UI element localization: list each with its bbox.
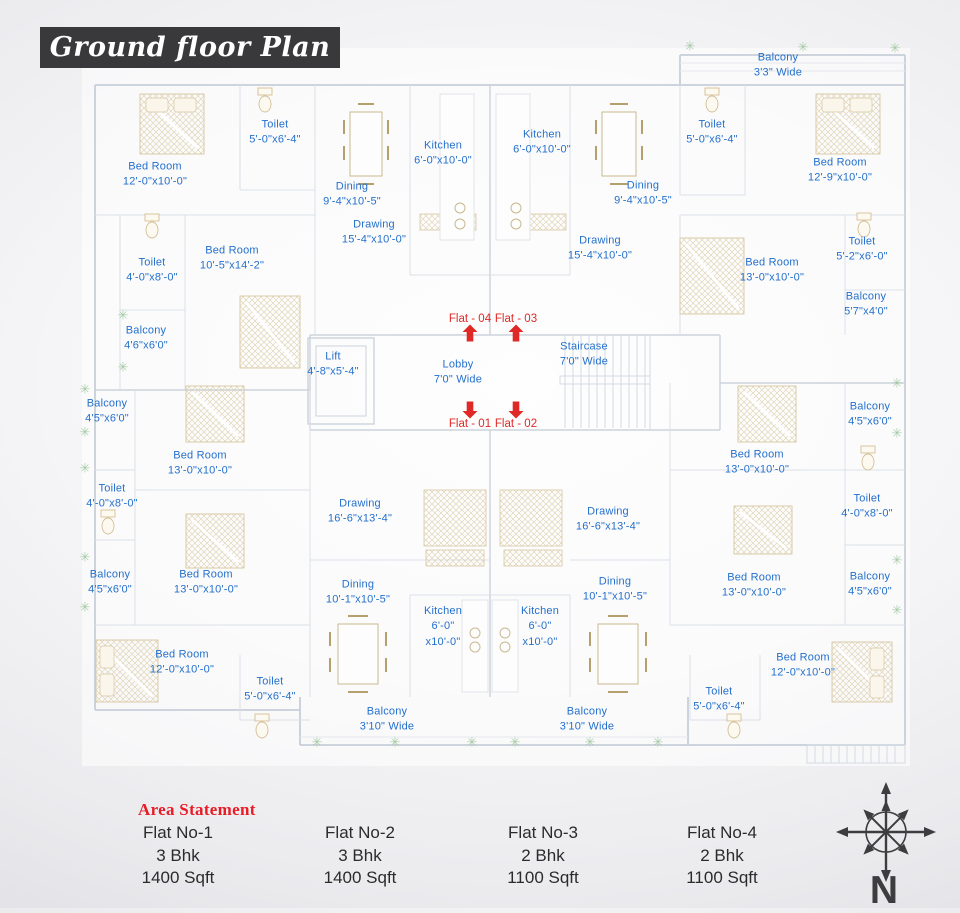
area-flat-name: Flat No-2 bbox=[324, 822, 397, 845]
flat-marker-label: Flat - 02 bbox=[495, 418, 537, 430]
plant-icon: ✳ bbox=[892, 377, 903, 390]
room-label: Bed Room13'-0"x10'-0" bbox=[725, 448, 789, 479]
area-flat-column: Flat No-42 Bhk1100 Sqft bbox=[686, 822, 758, 890]
plant-icon: ✳ bbox=[312, 736, 323, 749]
room-label: Drawing16'-6"x13'-4" bbox=[576, 505, 640, 536]
room-label: Balcony5'7"x4'0" bbox=[844, 290, 888, 321]
plant-icon: ✳ bbox=[890, 42, 901, 55]
flat-direction-arrow bbox=[509, 402, 524, 419]
area-flat-bhk: 2 Bhk bbox=[507, 845, 579, 868]
plant-icon: ✳ bbox=[892, 554, 903, 567]
room-label: Toilet4'-0"x8'-0" bbox=[841, 492, 893, 523]
room-label: Drawing15'-4"x10'-0" bbox=[568, 234, 632, 265]
room-label: Balcony3'10" Wide bbox=[360, 705, 414, 736]
room-label: Bed Room13'-0"x10'-0" bbox=[740, 256, 804, 287]
area-flat-size: 1100 Sqft bbox=[507, 867, 579, 890]
area-flat-size: 1100 Sqft bbox=[686, 867, 758, 890]
area-flat-bhk: 2 Bhk bbox=[686, 845, 758, 868]
room-label: Balcony4'5"x6'0" bbox=[88, 568, 132, 599]
plant-icon: ✳ bbox=[80, 462, 91, 475]
room-label: Lift4'-8"x5'-4" bbox=[307, 350, 359, 381]
room-label: Kitchen6'-0"x10'-0" bbox=[414, 139, 472, 170]
plant-icon: ✳ bbox=[653, 736, 664, 749]
room-label: Bed Room10'-5"x14'-2" bbox=[200, 244, 264, 275]
room-label: Dining9'-4"x10'-5" bbox=[614, 179, 672, 210]
room-label: Dining9'-4"x10'-5" bbox=[323, 180, 381, 211]
room-labels-layer: Bed Room12'-0"x10'-0"Toilet5'-0"x6'-4"Ki… bbox=[0, 0, 960, 908]
room-label: Balcony4'6"x6'0" bbox=[124, 324, 168, 355]
plant-icon: ✳ bbox=[80, 551, 91, 564]
room-label: Bed Room12'-0"x10'-0" bbox=[150, 648, 214, 679]
flat-marker-label: Flat - 03 bbox=[495, 313, 537, 325]
plant-icon: ✳ bbox=[685, 40, 696, 53]
compass-north-label: N bbox=[870, 869, 898, 913]
room-label: Balcony4'5"x6'0" bbox=[85, 397, 129, 428]
area-flat-size: 1400 Sqft bbox=[142, 867, 215, 890]
room-label: Toilet4'-0"x8'-0" bbox=[126, 256, 178, 287]
plant-icon: ✳ bbox=[390, 736, 401, 749]
plant-icon: ✳ bbox=[80, 601, 91, 614]
plant-icon: ✳ bbox=[510, 736, 521, 749]
area-flat-column: Flat No-32 Bhk1100 Sqft bbox=[507, 822, 579, 890]
room-label: Toilet5'-0"x6'-4" bbox=[686, 118, 738, 149]
room-label: Kitchen6'-0"x10'-0" bbox=[513, 128, 571, 159]
area-flat-bhk: 3 Bhk bbox=[324, 845, 397, 868]
room-label: Toilet4'-0"x8'-0" bbox=[86, 482, 138, 513]
plant-icon: ✳ bbox=[80, 383, 91, 396]
plant-icon: ✳ bbox=[892, 427, 903, 440]
room-label: Toilet5'-2"x6'-0" bbox=[836, 235, 888, 266]
room-label: Bed Room13'-0"x10'-0" bbox=[168, 449, 232, 480]
flat-marker-label: Flat - 01 bbox=[449, 418, 491, 430]
plant-icon: ✳ bbox=[892, 604, 903, 617]
area-flat-column: Flat No-23 Bhk1400 Sqft bbox=[324, 822, 397, 890]
room-label: Drawing15'-4"x10'-0" bbox=[342, 218, 406, 249]
plant-icon: ✳ bbox=[118, 361, 129, 374]
room-label: Balcony4'5"x6'0" bbox=[848, 400, 892, 431]
room-label: Toilet5'-0"x6'-4" bbox=[693, 685, 745, 716]
room-label: Bed Room12'-0"x10'-0" bbox=[123, 160, 187, 191]
plant-icon: ✳ bbox=[585, 736, 596, 749]
room-label: Bed Room12'-0"x10'-0" bbox=[771, 651, 835, 682]
room-label: Lobby7'0" Wide bbox=[434, 358, 482, 389]
room-label: Staircase7'0" Wide bbox=[560, 340, 608, 371]
ground-floor-plan-page: Ground floor Plan Bed Room12'-0"x10'-0"T… bbox=[0, 0, 960, 908]
room-label: Bed Room13'-0"x10'-0" bbox=[722, 571, 786, 602]
area-flat-name: Flat No-4 bbox=[686, 822, 758, 845]
flat-direction-arrow bbox=[509, 325, 524, 342]
flat-marker-label: Flat - 04 bbox=[449, 313, 491, 325]
room-label: Balcony3'3" Wide bbox=[754, 51, 802, 82]
room-label: Balcony3'10" Wide bbox=[560, 705, 614, 736]
area-flat-bhk: 3 Bhk bbox=[142, 845, 215, 868]
flat-direction-arrow bbox=[463, 325, 478, 342]
room-label: Toilet5'-0"x6'-4" bbox=[244, 675, 296, 706]
plant-icon: ✳ bbox=[467, 736, 478, 749]
room-label: Drawing16'-6"x13'-4" bbox=[328, 497, 392, 528]
room-label: Bed Room12'-9"x10'-0" bbox=[808, 156, 872, 187]
plant-icon: ✳ bbox=[80, 426, 91, 439]
plant-icon: ✳ bbox=[798, 41, 809, 54]
room-label: Toilet5'-0"x6'-4" bbox=[249, 118, 301, 149]
area-flat-name: Flat No-1 bbox=[142, 822, 215, 845]
room-label: Bed Room13'-0"x10'-0" bbox=[174, 568, 238, 599]
area-statement-row: Flat No-13 Bhk1400 SqftFlat No-23 Bhk140… bbox=[0, 822, 960, 902]
room-label: Balcony4'5"x6'0" bbox=[848, 570, 892, 601]
room-label: Dining10'-1"x10'-5" bbox=[326, 578, 390, 609]
flat-direction-arrow bbox=[463, 402, 478, 419]
plant-icon: ✳ bbox=[118, 309, 129, 322]
room-label: Dining10'-1"x10'-5" bbox=[583, 575, 647, 606]
area-flat-name: Flat No-3 bbox=[507, 822, 579, 845]
room-label: Kitchen6'-0"x10'-0" bbox=[424, 604, 462, 650]
area-flat-column: Flat No-13 Bhk1400 Sqft bbox=[142, 822, 215, 890]
area-flat-size: 1400 Sqft bbox=[324, 867, 397, 890]
room-label: Kitchen6'-0"x10'-0" bbox=[521, 604, 559, 650]
area-statement-heading: Area Statement bbox=[138, 800, 256, 820]
